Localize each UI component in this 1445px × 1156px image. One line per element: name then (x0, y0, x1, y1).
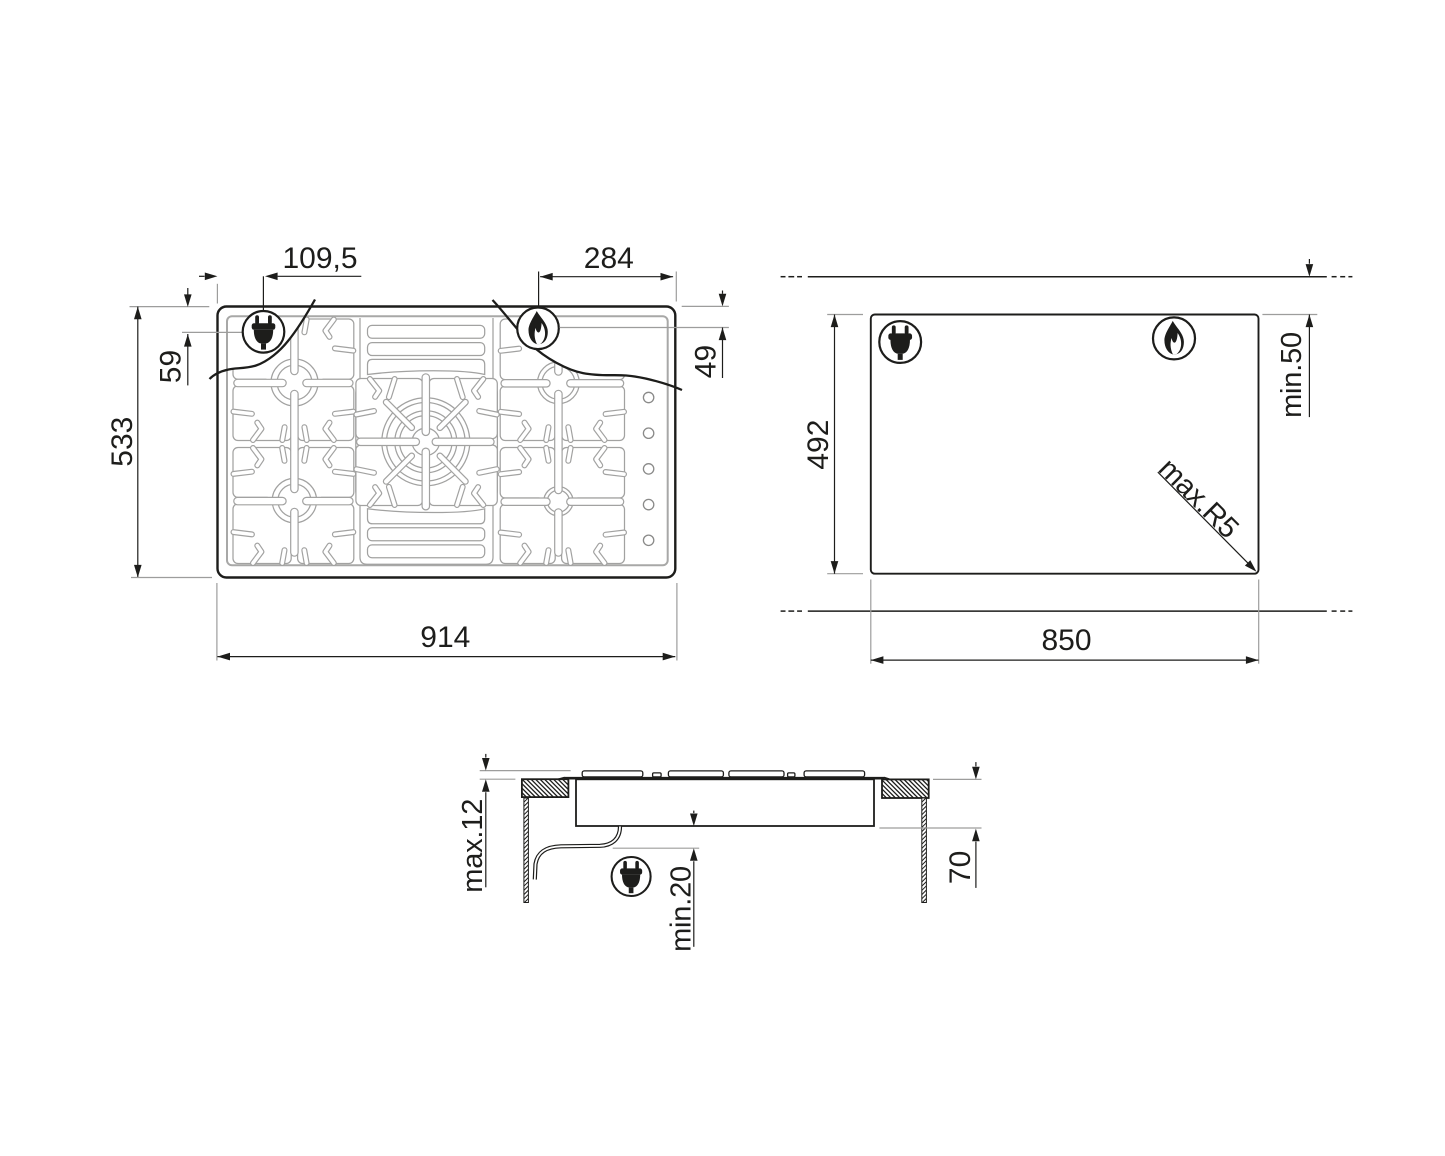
svg-text:70: 70 (944, 851, 977, 884)
svg-text:914: 914 (420, 621, 470, 654)
svg-text:max.12: max.12 (457, 799, 489, 893)
svg-text:min.50: min.50 (1276, 332, 1308, 418)
svg-text:49: 49 (690, 345, 723, 378)
svg-text:284: 284 (584, 242, 634, 275)
svg-text:492: 492 (802, 420, 835, 470)
svg-text:59: 59 (155, 350, 188, 383)
svg-text:850: 850 (1041, 624, 1091, 657)
svg-text:533: 533 (106, 417, 139, 467)
svg-text:min.20: min.20 (666, 866, 698, 952)
svg-text:109,5: 109,5 (282, 242, 357, 275)
